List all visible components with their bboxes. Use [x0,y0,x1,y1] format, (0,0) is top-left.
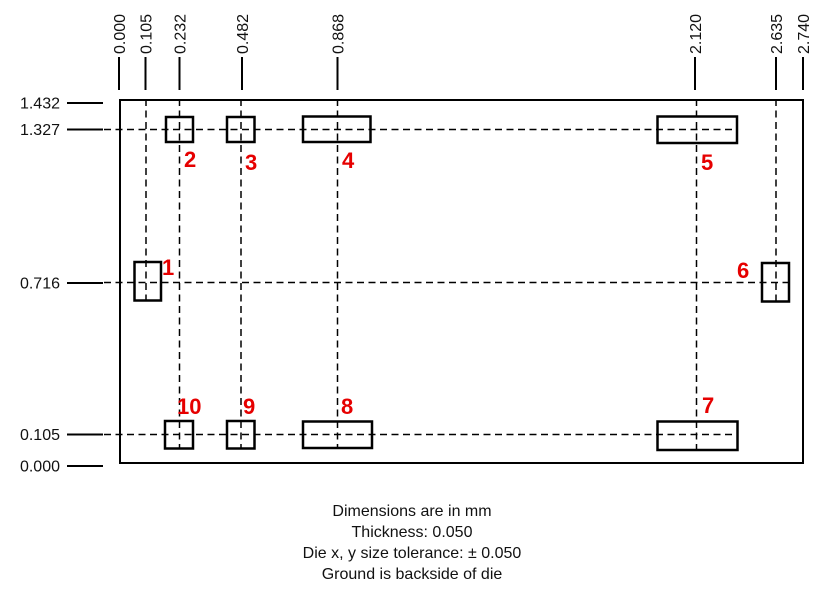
pad-2-number: 2 [184,147,196,172]
top-axis-label: 0.000 [112,14,129,54]
die-pad-layout-diagram: { "diagram_title": "die pad layout", "un… [0,0,827,593]
left-axis-label: 0.000 [20,459,60,476]
top-axis-label: 0.105 [139,14,156,54]
left-axis-label: 1.327 [20,122,60,139]
footer-notes: Dimensions are in mm Thickness: 0.050 Di… [200,501,624,585]
left-axis-labels: 1.432 1.327 0.716 0.105 0.000 [20,96,60,476]
pad-6-number: 6 [737,258,749,283]
note-tolerance: Die x, y size tolerance: ± 0.050 [200,543,624,564]
top-axis-ticks [119,57,803,90]
pad-9-number: 9 [243,394,255,419]
pad-8-number: 8 [341,394,353,419]
top-axis-label: 2.635 [769,14,786,54]
top-axis-labels: 0.000 0.105 0.232 0.482 0.868 2.120 2.63… [112,14,813,54]
construction-lines [104,99,789,450]
top-axis-label: 0.482 [235,14,252,54]
top-axis-label: 0.868 [331,14,348,54]
left-axis-label: 0.105 [20,427,60,444]
top-axis-label: 2.740 [796,14,813,54]
pad-1-number: 1 [162,255,174,280]
note-ground: Ground is backside of die [200,564,624,585]
top-axis-label: 0.232 [173,14,190,54]
note-thickness: Thickness: 0.050 [200,522,624,543]
pad-4-number: 4 [342,148,355,173]
left-axis-label: 0.716 [20,276,60,293]
pad-3-number: 3 [245,150,257,175]
pad-7-number: 7 [702,393,714,418]
left-axis-label: 1.432 [20,96,60,113]
pad-10-number: 10 [177,394,201,419]
left-axis-ticks [67,103,103,466]
top-axis-label: 2.120 [688,14,705,54]
pad-7-rect [658,422,738,451]
note-units: Dimensions are in mm [200,501,624,522]
pad-1-rect [135,262,162,301]
pad-5-number: 5 [701,150,713,175]
